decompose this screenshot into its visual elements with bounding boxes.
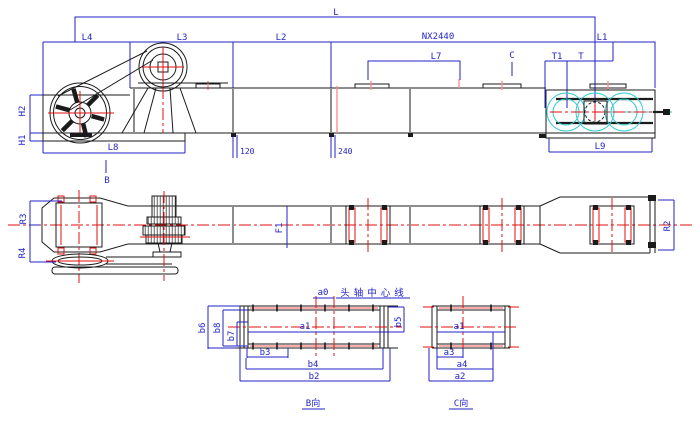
dim-b6: b6 [198,323,208,334]
detail-c-title: C向 [454,397,468,409]
dim-r3: R3 [19,214,29,225]
dim-l9: L9 [595,142,606,152]
dim-120: 120 [240,147,255,156]
head-sprocket-wheel [48,83,114,143]
dim-l3: L3 [177,33,188,43]
dim-a2: a2 [455,372,466,382]
dim-b4: b4 [308,360,319,370]
dim-h1: H1 [18,135,28,146]
note-head-axle-centerline: 头轴中心线 [340,287,408,299]
dim-a1-c: a1 [454,322,465,332]
dim-l8: L8 [108,143,119,153]
dim-b8: b8 [213,323,223,334]
dim-overall-length: L [333,8,338,18]
drive-motor-pulley [58,43,228,133]
dim-a1-b: a1 [300,322,311,332]
dim-a3: a3 [444,348,455,358]
front-view-trough [43,86,655,141]
dim-b3: b3 [260,348,271,358]
detail-view-b: a0 头轴中心线 a1 b6 b8 b7 b5 b3 b4 b2 B向 [198,287,410,409]
detail-view-c: a1 a3 a4 a2 C向 [420,296,519,409]
dim-240: 240 [338,147,353,156]
dim-b7: b7 [227,331,237,342]
dim-l7: L7 [431,52,442,62]
cad-drawing-page: L L4 L3 L2 NX2440 L1 L7 T1 T C H2 H1 L8 … [0,0,700,429]
dim-l1: L1 [597,33,608,43]
view-marker-c: C [509,51,514,61]
dim-t1: T1 [552,52,563,62]
dim-h2: H2 [18,106,28,117]
dim-l4: L4 [82,33,93,43]
dim-b5: b5 [394,317,404,328]
drawing-canvas: L L4 L3 L2 NX2440 L1 L7 T1 T C H2 H1 L8 … [0,0,700,429]
detail-b-title: B向 [306,397,320,409]
plan-view [8,190,692,283]
dim-r2: R2 [663,221,673,232]
dim-a4: a4 [457,360,468,370]
tail-takeup-section [539,90,672,138]
dim-l2: L2 [276,33,287,43]
view-marker-b: B [104,176,109,186]
dim-a0: a0 [318,288,329,298]
dim-pitch-nx2440: NX2440 [422,32,455,42]
dim-r4: R4 [18,248,28,259]
dim-t: T [578,52,584,62]
dim-f1: F1 [275,223,285,234]
dim-b2: b2 [309,372,320,382]
